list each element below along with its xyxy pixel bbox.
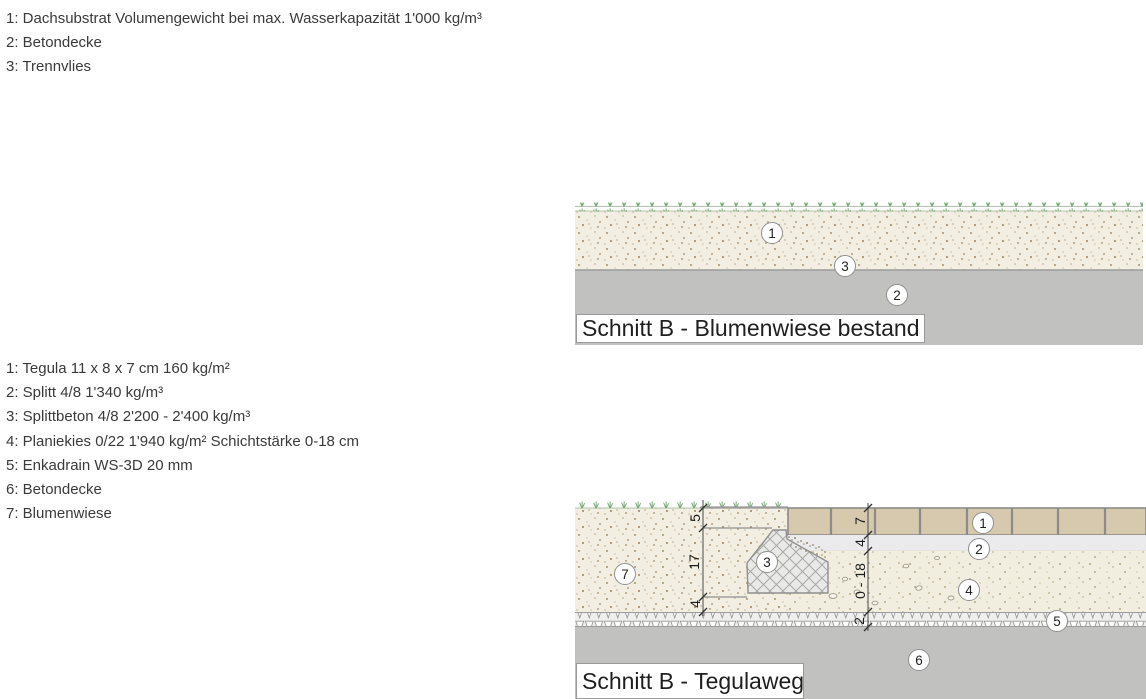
marker-label: 4 xyxy=(965,583,973,598)
legend-item: 2: Splitt 4/8 1'340 kg/m³ xyxy=(6,381,359,405)
marker-label: 5 xyxy=(1053,614,1061,629)
legend-item: 4: Planiekies 0/22 1'940 kg/m² Schichtst… xyxy=(6,430,359,454)
legend-item: 3: Splittbeton 4/8 2'200 - 2'400 kg/m³ xyxy=(6,405,359,429)
marker-trennvlies: 3 xyxy=(834,255,856,277)
legend-tegulaweg: 1: Tegula 11 x 8 x 7 cm 160 kg/m² 2: Spl… xyxy=(6,357,359,526)
marker-label: 2 xyxy=(893,288,901,303)
marker-betondecke: 2 xyxy=(886,284,908,306)
marker-label: 2 xyxy=(975,542,983,557)
legend-item: 1: Tegula 11 x 8 x 7 cm 160 kg/m² xyxy=(6,357,359,381)
marker-label: 7 xyxy=(621,567,629,582)
dim-label-17: 17 xyxy=(686,554,702,570)
section-title-text: Schnitt B - Blumenwiese bestand xyxy=(582,315,920,342)
marker-splitt: 2 xyxy=(968,538,990,560)
marker-blumenwiese: 7 xyxy=(614,563,636,585)
marker-tegula: 1 xyxy=(972,512,994,534)
marker-betondecke: 6 xyxy=(908,649,930,671)
section-title-text: Schnitt B - Tegulaweg xyxy=(582,668,804,695)
section-blumenwiese: 1 3 2 Schnitt B - Blumenwiese bestand xyxy=(575,198,1143,345)
section-title-blumenwiese: Schnitt B - Blumenwiese bestand xyxy=(576,314,925,343)
marker-label: 3 xyxy=(763,555,771,570)
dim-label-2: 2 xyxy=(851,617,867,625)
dim-label-0-18: 0 - 18 xyxy=(852,563,868,599)
marker-label: 6 xyxy=(915,653,923,668)
section-title-tegulaweg: Schnitt B - Tegulaweg xyxy=(576,663,804,699)
dim-label-5: 5 xyxy=(687,514,703,522)
marker-label: 1 xyxy=(979,516,987,531)
legend-item: 6: Betondecke xyxy=(6,478,359,502)
legend-item: 1: Dachsubstrat Volumengewicht bei max. … xyxy=(6,7,482,31)
marker-planiekies: 4 xyxy=(958,579,980,601)
marker-splittbeton: 3 xyxy=(756,551,778,573)
dim-label-7: 7 xyxy=(852,517,868,525)
legend-item: 5: Enkadrain WS-3D 20 mm xyxy=(6,454,359,478)
legend-item: 3: Trennvlies xyxy=(6,55,482,79)
grass-layer xyxy=(575,203,1143,212)
dim-label-4-right: 4 xyxy=(852,539,868,547)
splitt-layer xyxy=(788,535,1146,551)
marker-label: 3 xyxy=(841,259,849,274)
section-tegulaweg: 5 17 4 7 4 0 - 18 2 7 3 1 2 4 5 6 Schnit… xyxy=(575,500,1146,699)
legend-item: 2: Betondecke xyxy=(6,31,482,55)
legend-blumenwiese: 1: Dachsubstrat Volumengewicht bei max. … xyxy=(6,7,482,80)
marker-label: 1 xyxy=(768,226,776,241)
page: 1: Dachsubstrat Volumengewicht bei max. … xyxy=(0,0,1146,699)
dim-label-4-left: 4 xyxy=(687,600,703,608)
marker-substrate: 1 xyxy=(761,222,783,244)
substrate-layer xyxy=(575,211,1143,270)
legend-item: 7: Blumenwiese xyxy=(6,502,359,526)
marker-enkadrain: 5 xyxy=(1046,610,1068,632)
